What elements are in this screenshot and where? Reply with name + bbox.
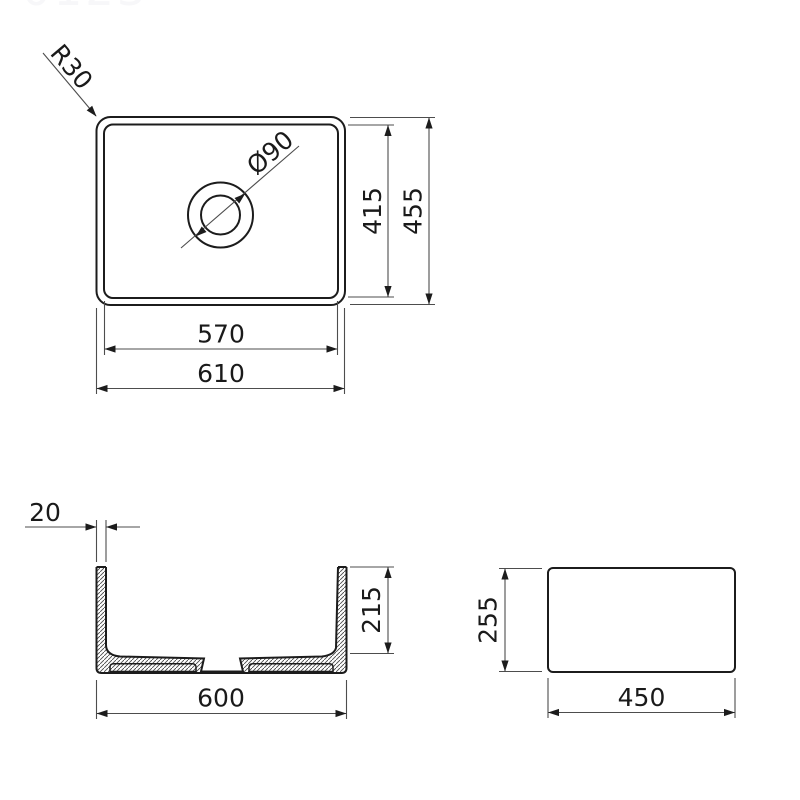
dim-inner-height-label: 415	[358, 187, 387, 235]
arrowhead	[548, 709, 559, 716]
dim-inner-width-label: 570	[197, 320, 245, 349]
dim-wall-thickness-label: 20	[29, 498, 61, 527]
arrowhead	[327, 345, 338, 352]
dim-outer-height-label: 455	[399, 187, 428, 235]
arrowhead	[97, 385, 108, 392]
arrowhead	[425, 118, 432, 129]
arrowhead	[384, 286, 391, 297]
side-view: 255 450	[474, 568, 736, 718]
arrowhead	[334, 385, 345, 392]
dim-drain-diameter: Ø90	[181, 125, 299, 248]
dim-inner-depth: 215	[350, 567, 394, 654]
dim-drain-diameter-label: Ø90	[241, 125, 299, 181]
dim-corner-radius: R30	[43, 39, 99, 119]
dim-side-height: 255	[474, 569, 543, 672]
top-view: R30 Ø90 415	[43, 39, 435, 394]
dim-wall-thickness: 20	[25, 498, 140, 562]
front-section-view: 20 215 600	[25, 498, 394, 719]
basin-interior	[106, 566, 338, 672]
sink-outer-rim	[97, 117, 346, 305]
arrowhead	[336, 710, 347, 717]
arrowhead	[384, 567, 391, 578]
drawing-canvas: R30 Ø90 415	[0, 0, 800, 800]
drain-outer-circle	[188, 183, 253, 248]
dim-section-width-label: 600	[197, 684, 245, 713]
dim-inner-width: 570	[105, 301, 338, 355]
side-view-outline	[548, 568, 735, 672]
arrowhead	[501, 661, 508, 672]
dim-outer-width-label: 610	[197, 359, 245, 388]
arrowhead	[501, 569, 508, 580]
dim-inner-depth-label: 215	[357, 586, 386, 634]
dim-corner-radius-label: R30	[45, 39, 99, 95]
sink-inner-basin-edge	[104, 125, 338, 299]
dim-inner-height: 415	[348, 125, 394, 297]
dim-side-height-label: 255	[474, 596, 503, 644]
arrowhead	[106, 523, 117, 530]
dim-side-width-label: 450	[618, 683, 666, 712]
arrowhead	[384, 643, 391, 654]
arrowhead	[384, 125, 391, 136]
arrowhead	[105, 345, 116, 352]
arrowhead	[86, 523, 97, 530]
arrowhead	[724, 709, 735, 716]
arrowhead	[97, 710, 108, 717]
arrowhead	[425, 294, 432, 305]
dim-section-width: 600	[97, 680, 347, 719]
technical-drawing-page: 0123 R30 Ø90	[0, 0, 800, 800]
dim-side-width: 450	[548, 678, 735, 718]
